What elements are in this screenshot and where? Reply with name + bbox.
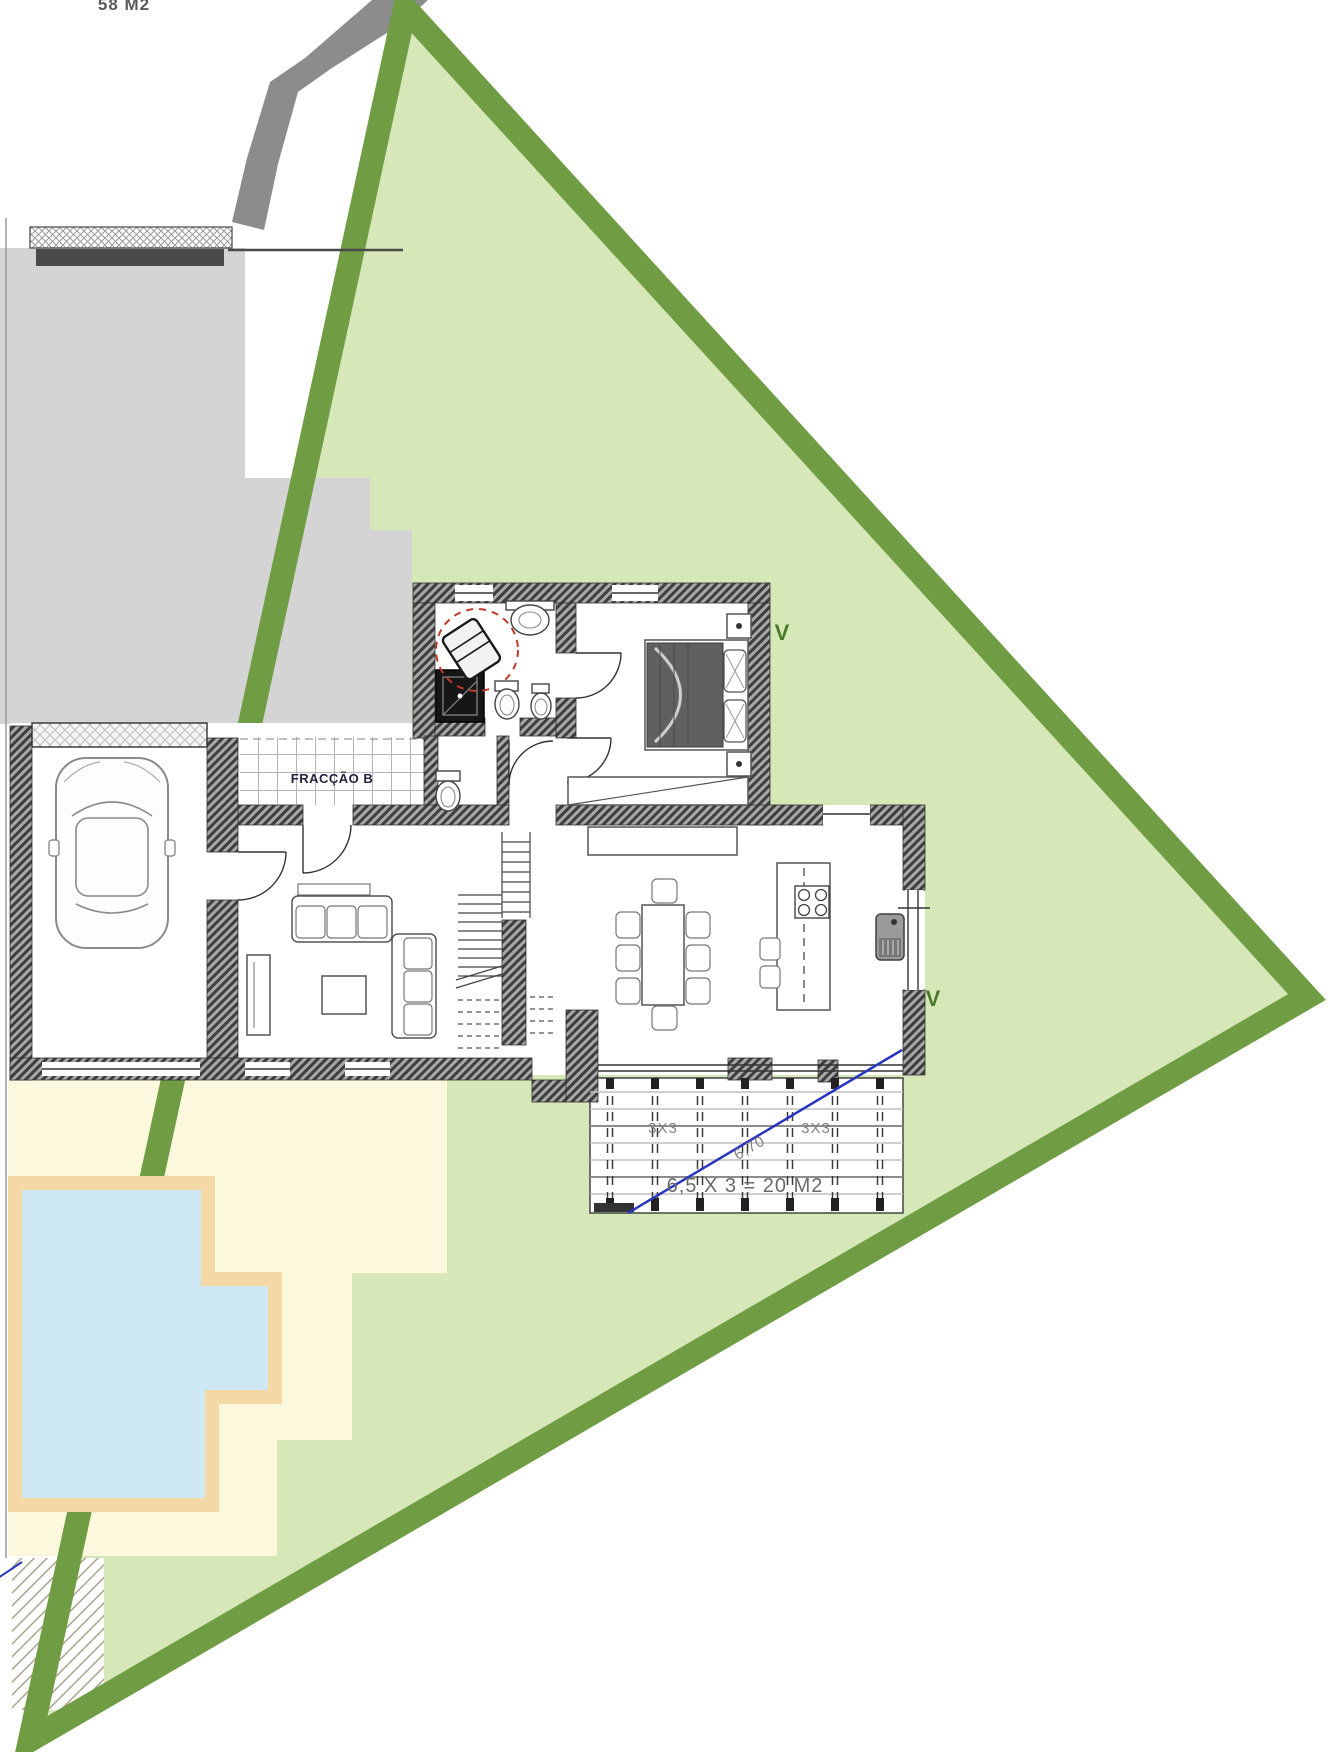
floor-plan-drawing: 58 M2 FRACÇÃO B V V 3X3 3X3 6,70 6,5 X 3… [0, 0, 1338, 1752]
sofa-side [392, 934, 436, 1038]
retaining-bar [36, 249, 224, 266]
dining-table [642, 905, 684, 1005]
bench-cabinet [588, 827, 737, 855]
fridge [876, 914, 904, 960]
sofa-three-seat [292, 896, 392, 942]
bed [645, 640, 748, 750]
deck-dim-right: 3X3 [801, 1120, 831, 1137]
bidet [531, 684, 551, 719]
deck-area-label: 6,5 X 3 = 20 M2 [667, 1175, 824, 1197]
wardrobe [568, 777, 748, 805]
stove [795, 886, 829, 918]
console-table [298, 884, 370, 895]
stool [760, 938, 780, 960]
floor-plan-canvas: 58 M2 FRACÇÃO B V V 3X3 3X3 6,70 6,5 X 3… [0, 0, 1338, 1752]
fraction-label: FRACÇÃO B [291, 771, 374, 786]
wall-upper-left [413, 603, 435, 738]
toilet [495, 681, 519, 719]
garage-door [32, 723, 207, 747]
wc-toilet [436, 771, 460, 811]
coffee-table [322, 976, 366, 1014]
vent-marker-1: V [775, 620, 790, 645]
car [49, 758, 175, 948]
vent-marker-2: V [926, 986, 941, 1011]
deck-dim-left: 3X3 [648, 1120, 678, 1137]
wall-garage-left [10, 726, 32, 1080]
lot-area-label: 58 M2 [98, 0, 150, 14]
tv-sideboard [247, 955, 270, 1035]
boundary-crosshatch-strip [30, 227, 232, 248]
shower [436, 670, 484, 722]
stool [760, 966, 780, 988]
